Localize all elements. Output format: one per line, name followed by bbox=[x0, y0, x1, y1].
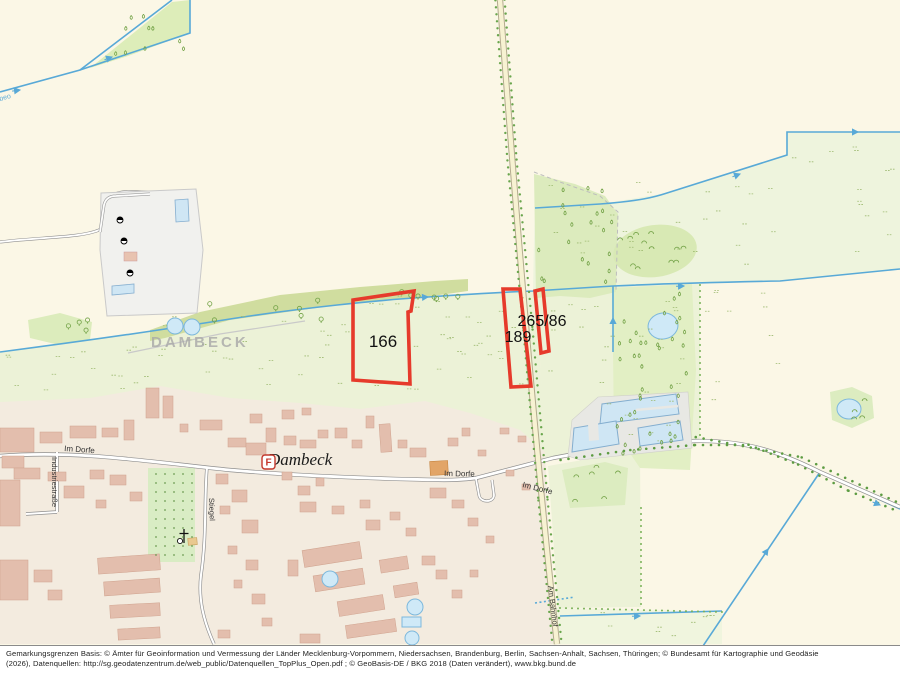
fire-station-icon: F bbox=[265, 458, 271, 469]
building bbox=[96, 500, 106, 508]
building bbox=[360, 500, 370, 508]
street-label-stiegel: Stiegel bbox=[207, 498, 217, 522]
pond bbox=[322, 571, 338, 587]
attribution-line1: Gemarkungsgrenzen Basis: © Ämter für Geo… bbox=[6, 649, 894, 659]
building bbox=[398, 440, 407, 448]
pond bbox=[167, 318, 183, 334]
pond bbox=[407, 599, 423, 615]
building bbox=[234, 580, 242, 588]
building bbox=[448, 438, 458, 446]
map-viewport: 166 189 265/86 DAMBECK Dambeck Im Dorfe … bbox=[0, 0, 900, 675]
building bbox=[246, 443, 266, 455]
building bbox=[430, 488, 446, 498]
parcel-265-86-label: 265/86 bbox=[518, 313, 567, 330]
building bbox=[452, 500, 464, 508]
map-canvas[interactable]: 166 189 265/86 DAMBECK Dambeck Im Dorfe … bbox=[0, 0, 900, 645]
building bbox=[216, 474, 228, 484]
building bbox=[146, 388, 159, 418]
building bbox=[48, 590, 62, 600]
building bbox=[180, 424, 188, 432]
building bbox=[110, 475, 126, 485]
building bbox=[64, 486, 84, 498]
building bbox=[34, 570, 52, 582]
building bbox=[242, 520, 258, 533]
cemetery-area bbox=[148, 468, 195, 562]
building bbox=[335, 428, 347, 438]
attribution-line2: (2026), Datenquellen: http://sg.geodaten… bbox=[6, 659, 894, 669]
fire-station-symbol: F bbox=[262, 455, 275, 469]
pond bbox=[184, 319, 200, 335]
basin-small-1 bbox=[175, 199, 189, 222]
building bbox=[452, 590, 462, 598]
building bbox=[220, 506, 230, 514]
building bbox=[130, 492, 142, 501]
building bbox=[0, 428, 34, 452]
street-label-industriestrasse: Industriestraße bbox=[50, 457, 59, 507]
building bbox=[506, 470, 514, 476]
building bbox=[0, 480, 20, 526]
building bbox=[228, 546, 237, 554]
building bbox=[468, 518, 478, 526]
building bbox=[422, 556, 435, 565]
building bbox=[14, 468, 40, 479]
industrial-area bbox=[100, 189, 203, 316]
building bbox=[300, 440, 316, 448]
building bbox=[163, 396, 173, 418]
building bbox=[518, 436, 526, 442]
building bbox=[282, 472, 292, 480]
building bbox=[232, 490, 247, 502]
building bbox=[2, 456, 24, 468]
building bbox=[282, 410, 294, 419]
building bbox=[200, 420, 222, 430]
building bbox=[246, 560, 258, 570]
parcel-189-label: 189 bbox=[505, 329, 532, 346]
building bbox=[110, 603, 161, 619]
building bbox=[250, 414, 262, 423]
place-label: Dambeck bbox=[267, 450, 333, 469]
building bbox=[390, 512, 400, 520]
district-label: DAMBECK bbox=[151, 334, 249, 351]
building bbox=[284, 436, 296, 445]
building bbox=[462, 428, 470, 436]
building bbox=[332, 506, 344, 514]
parcel-166-label: 166 bbox=[369, 332, 397, 351]
building bbox=[478, 450, 486, 456]
basin-village bbox=[402, 617, 421, 627]
building bbox=[436, 570, 447, 579]
building bbox=[218, 630, 230, 638]
building bbox=[410, 448, 426, 457]
building bbox=[379, 424, 392, 453]
building bbox=[298, 486, 310, 495]
building bbox=[90, 470, 104, 479]
building bbox=[352, 440, 362, 448]
building bbox=[266, 428, 276, 442]
building bbox=[366, 416, 374, 428]
building bbox=[252, 594, 265, 604]
building bbox=[300, 502, 316, 512]
building bbox=[228, 438, 246, 447]
building bbox=[302, 408, 311, 415]
building bbox=[300, 634, 320, 643]
building bbox=[70, 426, 96, 438]
basin-small-2 bbox=[112, 284, 134, 295]
building bbox=[262, 618, 272, 626]
building bbox=[486, 536, 494, 543]
building bbox=[470, 570, 478, 577]
building bbox=[500, 428, 509, 434]
building bbox=[318, 430, 328, 438]
attribution-bar: Gemarkungsgrenzen Basis: © Ämter für Geo… bbox=[0, 645, 900, 675]
building bbox=[316, 478, 324, 486]
building bbox=[288, 560, 298, 576]
building bbox=[366, 520, 380, 530]
street-label-im-dorfe-mid: Im Dorfe bbox=[444, 469, 475, 479]
building bbox=[40, 432, 62, 443]
building bbox=[0, 560, 28, 600]
pond bbox=[405, 631, 419, 645]
building bbox=[124, 420, 134, 440]
building bbox=[118, 627, 161, 640]
building bbox=[102, 428, 118, 437]
pond bbox=[837, 399, 861, 419]
building bbox=[406, 528, 416, 536]
